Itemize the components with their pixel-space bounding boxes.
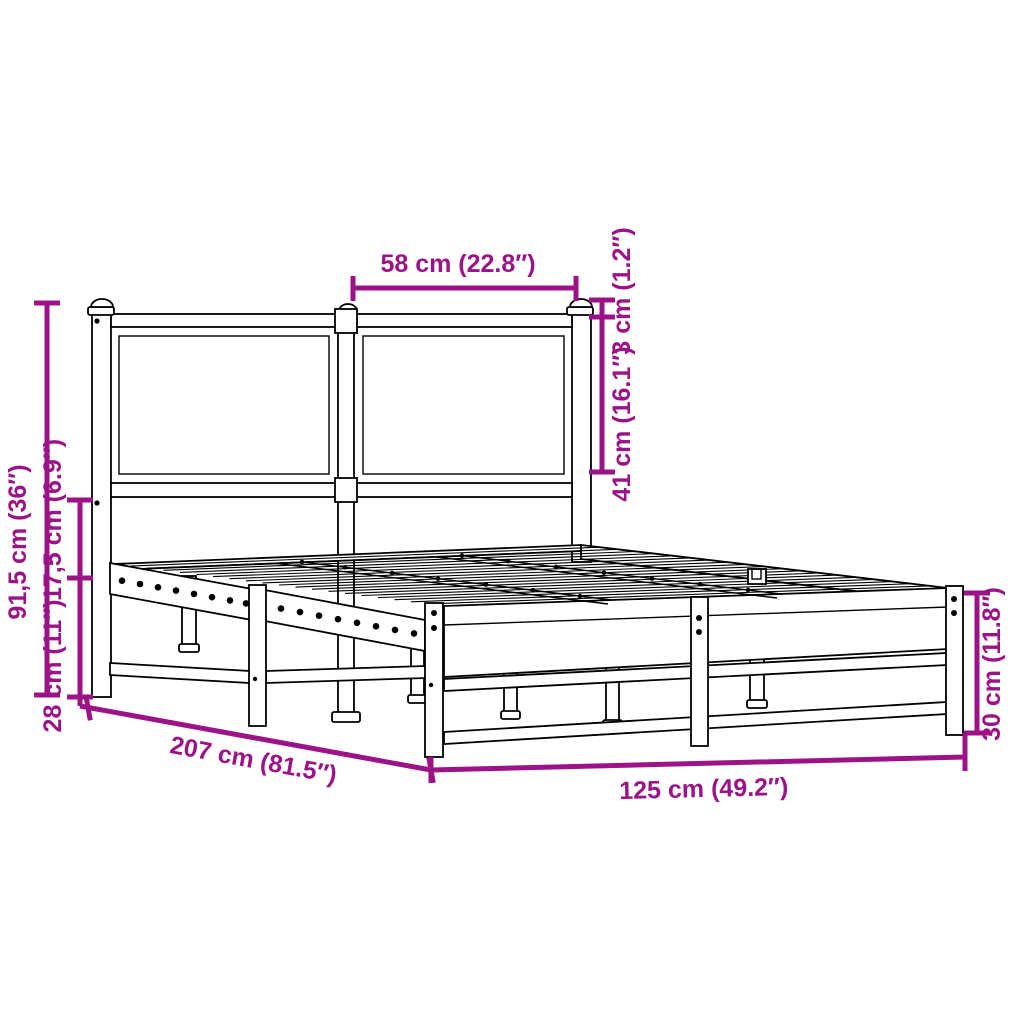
dimension-base-height-label: 30 cm (11.8″) [978,587,1006,741]
dimension-headboard-segment-width-label: 58 cm (22.8″) [380,250,535,278]
dimension-panel-height-label: 41 cm (16.1″) [608,346,636,501]
headboard-left-post [92,313,111,697]
background [0,0,1024,1024]
left-middle-leg [249,585,266,726]
dimension-clearance-label: 28 cm (11″) [39,600,67,733]
dimension-gap-label: 17,5 cm (6.9″) [39,439,67,601]
foot-right-post [946,586,963,735]
dimension-width-label: 125 cm (49.2″) [619,773,789,805]
dimension-top-rail-offset-label: 3 cm (1.2″) [608,227,636,354]
bed-frame-dimension-diagram: 58 cm (22.8″) 3 cm (1.2″) 41 cm (16.1″) … [0,0,1024,1024]
headboard-right-post [572,313,591,562]
dimension-headboard-height-label: 91,5 cm (36″) [4,464,32,619]
